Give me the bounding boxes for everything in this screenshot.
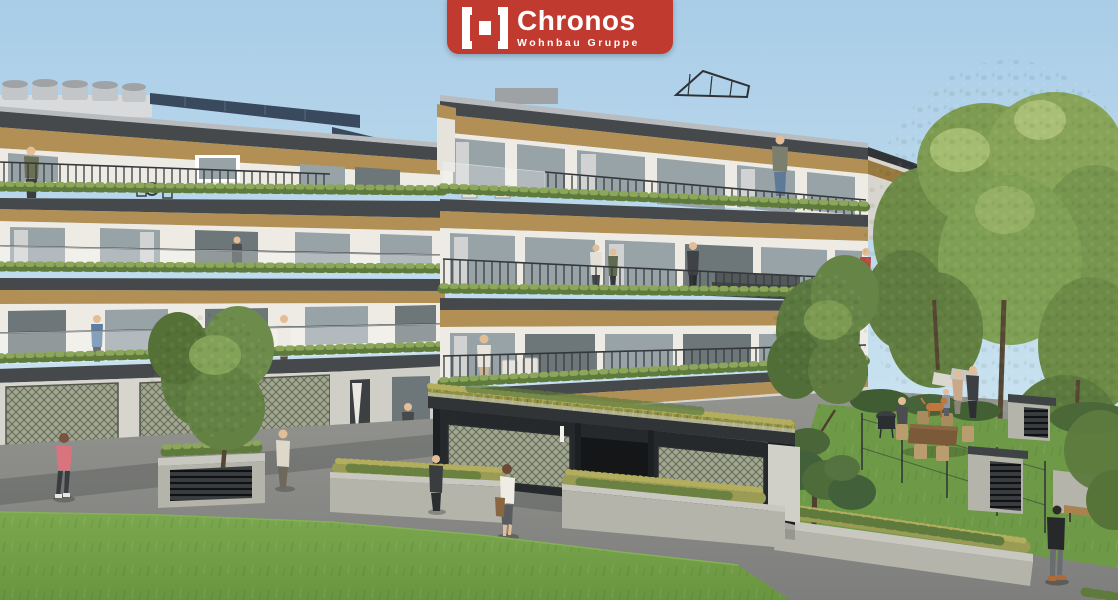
utility-box-upper bbox=[1008, 394, 1056, 441]
chronos-logo: Chronos Wohnbau Gruppe bbox=[447, 0, 673, 54]
logo-subtitle: Wohnbau Gruppe bbox=[517, 38, 640, 49]
entrance-lamp bbox=[560, 426, 564, 442]
bracket-square-icon bbox=[462, 7, 508, 49]
utility-box-lower bbox=[968, 446, 1028, 514]
rendering-canvas: Chronos Wohnbau Gruppe bbox=[0, 0, 1118, 600]
scene-rendering bbox=[0, 0, 1118, 600]
tree-planter bbox=[158, 443, 265, 508]
logo-brand: Chronos bbox=[517, 7, 640, 35]
